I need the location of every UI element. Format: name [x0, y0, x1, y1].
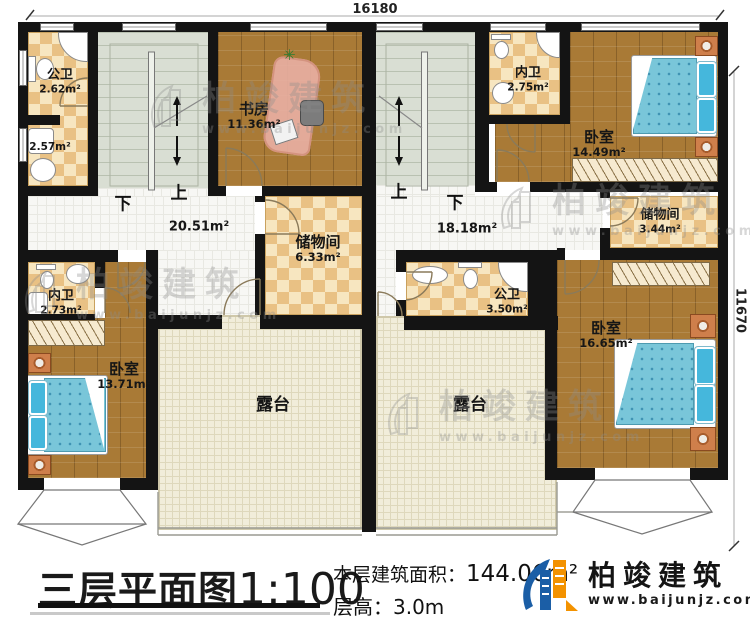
wall-right — [718, 22, 728, 480]
window — [40, 23, 74, 31]
wall — [18, 115, 60, 125]
room-label-bedroom-ne: 卧室 14.49m² — [572, 129, 625, 159]
bed-ne-sheet — [633, 58, 663, 132]
wall — [396, 300, 406, 316]
wall — [95, 262, 105, 288]
dimension-right: 11670 — [733, 281, 748, 341]
wall — [208, 186, 226, 196]
brand-logo-icon — [516, 554, 582, 616]
wall — [255, 196, 265, 202]
nightstand — [690, 314, 716, 338]
toilet-tank-symbol — [491, 34, 511, 40]
window — [122, 23, 176, 31]
room-label-storage-e: 储物间 3.44m² — [639, 209, 680, 236]
wardrobe-se — [612, 262, 710, 286]
floorplan-canvas: ✳ — [0, 0, 750, 624]
sink-symbol — [412, 266, 448, 284]
wall — [557, 248, 565, 260]
wall — [396, 250, 545, 262]
wall — [404, 316, 558, 330]
wall — [88, 22, 98, 196]
room-label-hall-e: 18.18m² — [437, 223, 497, 238]
staircase-right — [376, 32, 475, 185]
room-label-bedroom-sw: 卧室 13.71m² — [97, 361, 150, 391]
wall — [600, 228, 610, 248]
wall — [545, 250, 557, 480]
stair-left-up-label: 上 — [171, 179, 188, 204]
wall — [396, 262, 406, 272]
bed-se-pillow — [695, 347, 715, 385]
window — [19, 128, 27, 162]
room-label-terrace-e: 露台 — [453, 396, 487, 416]
plant-icon: ✳ — [283, 46, 296, 64]
room-label-bath-w: 内卫 2.73m² — [40, 290, 81, 317]
wall — [262, 186, 362, 196]
title-underline-light — [30, 612, 330, 615]
bed-sw-pillow — [29, 381, 47, 415]
wall — [120, 478, 146, 490]
wall — [530, 182, 718, 192]
wall — [600, 248, 718, 260]
wall — [528, 262, 545, 316]
wall — [475, 22, 489, 182]
room-label-bath-c: 公卫 3.50m² — [486, 289, 527, 316]
wardrobe-ne — [572, 158, 718, 182]
wall — [557, 468, 595, 480]
window — [490, 23, 546, 31]
wall — [255, 234, 265, 315]
stair-right-down-label: 下 — [447, 189, 464, 214]
title-underline — [38, 603, 320, 608]
window — [581, 23, 700, 31]
nightstand — [695, 36, 718, 56]
floor-terrace-e — [376, 316, 557, 530]
floor-bedroom-sw-entry — [105, 262, 146, 318]
toilet-tank-symbol — [458, 262, 482, 268]
floor-hall-e-corridor — [376, 250, 396, 316]
room-label-terrace-w: 露台 — [256, 396, 290, 416]
room-label-bath-nw: 公卫 2.62m² — [39, 69, 80, 96]
wall — [475, 182, 497, 192]
room-label-study: 书房 11.36m² — [227, 101, 280, 131]
bed-se-pillow — [695, 385, 715, 423]
floor-bedroom-ne-entry — [495, 124, 570, 182]
room-label-bedroom-se: 卧室 16.65m² — [579, 320, 632, 350]
wall — [260, 315, 362, 329]
wall-party — [362, 22, 376, 532]
toilet-tank-symbol — [28, 56, 36, 82]
wall — [208, 22, 218, 196]
floor-height-value: 3.0m — [393, 595, 444, 619]
brand-block: 柏竣建筑 www.baijunjz.com — [516, 554, 750, 616]
wall — [560, 22, 570, 115]
floor-height-label: 层高： — [333, 595, 393, 619]
floor-area-label: 本层建筑面积： — [333, 564, 466, 586]
stair-right-up-label: 上 — [391, 178, 408, 203]
room-label-hall-w: 20.51m² — [169, 221, 229, 236]
staircase-left — [98, 32, 208, 188]
toilet-symbol — [494, 41, 509, 59]
bed-ne-pillow — [697, 98, 716, 133]
toilet-symbol — [463, 269, 478, 289]
brand-name: 柏竣建筑 — [588, 562, 750, 590]
wall — [18, 478, 44, 490]
wall — [600, 192, 610, 198]
toilet-symbol — [40, 271, 54, 289]
office-chair — [300, 100, 324, 126]
wall — [690, 468, 718, 480]
nightstand — [28, 455, 51, 475]
wall — [18, 186, 98, 196]
bed-se-sheet — [616, 343, 650, 423]
stair-left-down-label: 下 — [115, 190, 132, 215]
wardrobe-sw — [28, 320, 105, 346]
dimension-top: 16180 — [340, 2, 410, 17]
floor-terrace-w — [158, 315, 362, 530]
window — [376, 23, 423, 31]
floor-hall-w-lower — [158, 250, 255, 315]
toilet-tank-symbol — [36, 264, 56, 270]
sink-symbol — [66, 264, 90, 284]
nightstand — [28, 353, 51, 373]
nightstand — [695, 137, 718, 157]
window — [250, 23, 327, 31]
room-label-bath-n: 内卫 2.75m² — [507, 67, 548, 94]
wall — [475, 115, 570, 124]
room-label-laundry: 2.57m² — [29, 141, 70, 153]
bed-ne-pillow — [697, 62, 716, 97]
sink-symbol — [30, 158, 56, 182]
bed-sw-pillow — [29, 416, 47, 450]
brand-url: www.baijunjz.com — [588, 593, 750, 608]
room-label-storage-c: 储物间 6.33m² — [295, 234, 340, 264]
window — [19, 50, 27, 86]
nightstand — [690, 427, 716, 451]
wall — [18, 250, 118, 262]
